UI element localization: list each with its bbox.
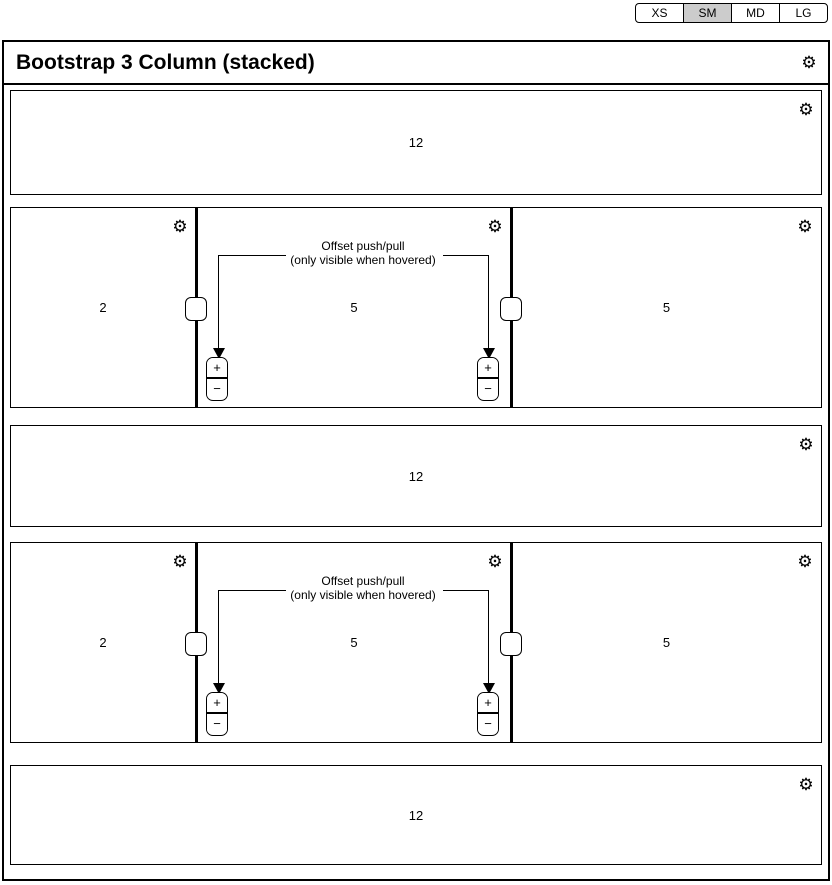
row-4-col-1-settings-gear-icon[interactable]: ⚙ <box>171 552 189 570</box>
row-5-settings-gear-icon[interactable]: ⚙ <box>797 775 815 793</box>
row-2-col-1-span-label: 2 <box>99 300 106 315</box>
offset-decrease-button[interactable]: − <box>478 379 498 400</box>
column-resize-handle[interactable] <box>185 297 207 321</box>
offset-annotation-line2: (only visible when hovered) <box>281 588 445 602</box>
annotation-line <box>443 590 489 591</box>
row-4-col-3-settings-gear-icon[interactable]: ⚙ <box>796 552 814 570</box>
row-4-column-3: 5 ⚙ <box>513 543 820 742</box>
row-3-settings-gear-icon[interactable]: ⚙ <box>797 435 815 453</box>
row-2-col-2-settings-gear-icon[interactable]: ⚙ <box>486 217 504 235</box>
page-title: Bootstrap 3 Column (stacked) <box>16 51 800 75</box>
tab-md[interactable]: MD <box>731 3 780 23</box>
offset-increase-button[interactable]: + <box>207 693 227 714</box>
row-2-split: 2 ⚙ 5 ⚙ 5 ⚙ Offset push/pull (only visib… <box>10 207 822 408</box>
row-4-col-2-span-label: 5 <box>350 635 357 650</box>
row-4-col-1-span-label: 2 <box>99 635 106 650</box>
offset-decrease-button[interactable]: − <box>478 714 498 735</box>
offset-increase-button[interactable]: + <box>207 358 227 379</box>
annotation-line <box>443 255 489 256</box>
row-2-column-1: 2 ⚙ <box>11 208 195 407</box>
row-1-full: 12 ⚙ <box>10 90 822 195</box>
row-4-col-3-span-label: 5 <box>663 635 670 650</box>
tab-xs[interactable]: XS <box>635 3 684 23</box>
row-2-col-1-settings-gear-icon[interactable]: ⚙ <box>171 217 189 235</box>
annotation-line <box>488 255 489 348</box>
annotation-line <box>218 590 219 683</box>
offset-stepper-left: + − <box>206 692 228 736</box>
row-2-column-3: 5 ⚙ <box>513 208 820 407</box>
row-2-col-3-span-label: 5 <box>663 300 670 315</box>
rows-container: 12 ⚙ 2 ⚙ 5 ⚙ 5 ⚙ Offset push/pull ( <box>4 85 828 879</box>
tab-sm[interactable]: SM <box>683 3 732 23</box>
offset-annotation: Offset push/pull (only visible when hove… <box>281 239 445 267</box>
row-1-span-label: 12 <box>409 135 423 150</box>
offset-stepper-right: + − <box>477 692 499 736</box>
row-5-full: 12 ⚙ <box>10 765 822 865</box>
canvas-titlebar: Bootstrap 3 Column (stacked) ⚙ <box>4 42 828 85</box>
row-2-col-2-span-label: 5 <box>350 300 357 315</box>
row-3-full: 12 ⚙ <box>10 425 822 527</box>
row-1-settings-gear-icon[interactable]: ⚙ <box>797 100 815 118</box>
offset-annotation-line1: Offset push/pull <box>281 574 445 588</box>
offset-decrease-button[interactable]: − <box>207 714 227 735</box>
offset-stepper-left: + − <box>206 357 228 401</box>
row-4-column-1: 2 ⚙ <box>11 543 195 742</box>
annotation-line <box>488 590 489 683</box>
offset-annotation-line2: (only visible when hovered) <box>281 253 445 267</box>
column-resize-handle[interactable] <box>500 632 522 656</box>
layout-canvas: Bootstrap 3 Column (stacked) ⚙ 12 ⚙ 2 ⚙ … <box>2 40 830 881</box>
offset-decrease-button[interactable]: − <box>207 379 227 400</box>
row-5-span-label: 12 <box>409 808 423 823</box>
row-4-split: 2 ⚙ 5 ⚙ 5 ⚙ Offset push/pull (only visib… <box>10 542 822 743</box>
offset-increase-button[interactable]: + <box>478 693 498 714</box>
tab-lg[interactable]: LG <box>779 3 828 23</box>
row-3-span-label: 12 <box>409 469 423 484</box>
row-4-column-2: 5 ⚙ <box>198 543 510 742</box>
offset-stepper-right: + − <box>477 357 499 401</box>
offset-annotation-line1: Offset push/pull <box>281 239 445 253</box>
column-resize-handle[interactable] <box>500 297 522 321</box>
row-4-col-2-settings-gear-icon[interactable]: ⚙ <box>486 552 504 570</box>
offset-annotation: Offset push/pull (only visible when hove… <box>281 574 445 602</box>
breakpoint-tab-bar: XS SM MD LG <box>635 3 828 23</box>
row-2-column-2: 5 ⚙ <box>198 208 510 407</box>
annotation-line <box>218 255 219 348</box>
column-resize-handle[interactable] <box>185 632 207 656</box>
annotation-line <box>218 590 286 591</box>
annotation-line <box>218 255 286 256</box>
canvas-settings-gear-icon[interactable]: ⚙ <box>800 54 818 72</box>
offset-increase-button[interactable]: + <box>478 358 498 379</box>
row-2-col-3-settings-gear-icon[interactable]: ⚙ <box>796 217 814 235</box>
